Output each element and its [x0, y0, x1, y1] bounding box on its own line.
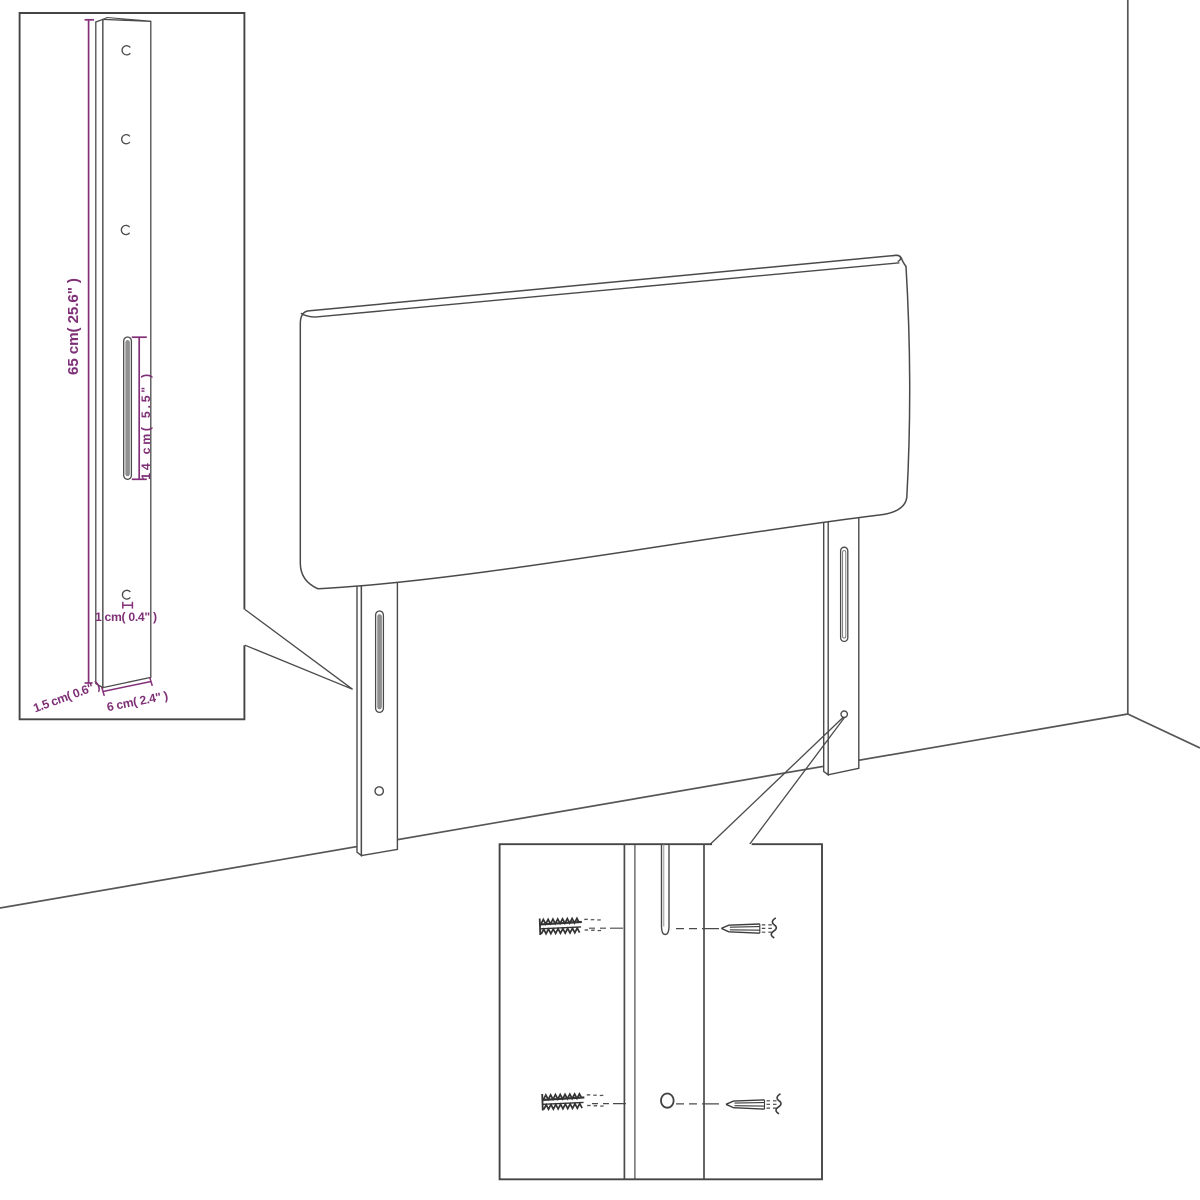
svg-text:65 cm( 25.6" ): 65 cm( 25.6" ) — [65, 278, 82, 375]
svg-text:1 cm( 0.4" ): 1 cm( 0.4" ) — [95, 610, 157, 624]
